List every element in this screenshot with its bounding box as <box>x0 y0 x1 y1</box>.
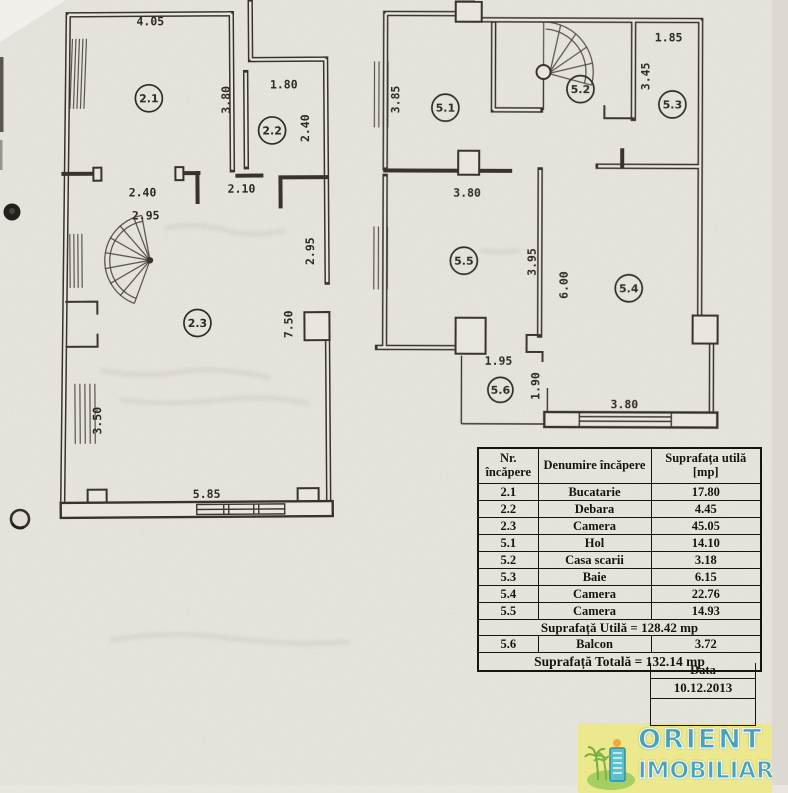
date-label: Data <box>650 663 756 679</box>
right-floor-plan: 5.1 5.2 5.3 5.4 5.5 5.6 3.85 1.85 3.45 3… <box>373 1 718 427</box>
room-label: 5.4 <box>619 282 639 295</box>
cell-nr: 2.2 <box>478 501 538 518</box>
cell-name: Casa scarii <box>538 552 651 569</box>
spiral-stair-right <box>536 22 593 110</box>
cell-nr: 5.5 <box>478 603 538 620</box>
room-badge-5-2: 5.2 <box>567 76 594 103</box>
room-badge-5-6: 5.6 <box>488 377 513 402</box>
cell-name: Baie <box>538 569 651 586</box>
room-badge-2-3: 2.3 <box>184 309 211 336</box>
table-row: 2.3 Camera 45.05 <box>478 518 761 535</box>
cell-nr: 5.2 <box>478 552 538 569</box>
signature-cell <box>650 699 756 726</box>
room-label: 2.2 <box>262 124 282 137</box>
dim-label: 3.80 <box>610 397 638 411</box>
dim-label: 2.10 <box>228 182 256 196</box>
cell-area: 17.80 <box>651 484 761 501</box>
dim-label: 1.90 <box>528 372 542 400</box>
cell-nr: 2.1 <box>478 484 538 501</box>
table-row: 5.5 Camera 14.93 <box>478 603 761 620</box>
dim-label: 3.50 <box>90 407 104 435</box>
dim-label: 7.50 <box>281 310 295 338</box>
dim-label: 1.85 <box>655 30 683 44</box>
cell-area: 4.45 <box>651 501 761 518</box>
erased-pencil-smudges <box>100 225 520 643</box>
dim-label: 6.00 <box>557 271 571 299</box>
dim-label: 1.80 <box>270 77 298 91</box>
cell-name: Camera <box>538 518 651 535</box>
dim-label: 2.95 <box>132 208 160 222</box>
cell-name: Balcon <box>538 636 651 653</box>
table-row: 5.2 Casa scarii 3.18 <box>478 552 761 569</box>
room-label: 2.1 <box>139 92 159 105</box>
dim-label: 3.80 <box>219 86 233 114</box>
logo-text-line1: ORIENT <box>638 724 763 755</box>
subtotal-row: Suprafață Utilă = 128.42 mp <box>478 620 761 636</box>
cell-nr: 2.3 <box>478 518 538 535</box>
balcony-row: 5.6 Balcon 3.72 <box>478 636 761 653</box>
room-badge-5-5: 5.5 <box>450 247 477 274</box>
cell-name: Camera <box>538 586 651 603</box>
table-row: 5.3 Baie 6.15 <box>478 569 761 586</box>
cell-name: Hol <box>538 535 651 552</box>
room-badge-5-1: 5.1 <box>432 94 459 121</box>
room-badge-5-4: 5.4 <box>615 275 642 302</box>
cell-area: 45.05 <box>651 518 761 535</box>
left-floor-plan: 2.1 2.2 2.3 4.05 3.80 1.80 2.40 2.40 2.1… <box>57 1 333 518</box>
cell-area: 14.93 <box>651 603 761 620</box>
room-label: 5.3 <box>663 98 683 111</box>
room-label: 5.1 <box>436 102 456 115</box>
header-nr: Nr. încăpere <box>478 448 538 484</box>
dim-label: 2.95 <box>303 237 317 265</box>
cell-area: 6.15 <box>651 569 761 586</box>
room-label: 5.2 <box>571 83 591 96</box>
dim-label: 5.85 <box>193 487 221 501</box>
table-header-row: Nr. încăpere Denumire încăpere Suprafața… <box>478 448 761 484</box>
hole-punch-bottom <box>11 510 29 528</box>
dim-label: 1.95 <box>485 354 513 368</box>
subtotal-text: Suprafață Utilă = 128.42 mp <box>478 620 761 636</box>
table-row: 2.2 Debara 4.45 <box>478 501 761 518</box>
dim-label: 3.85 <box>388 86 402 114</box>
hole-punch-top <box>4 204 21 221</box>
date-box: Data 10.12.2013 <box>650 663 756 726</box>
dim-label: 3.95 <box>525 248 539 276</box>
room-label: 5.5 <box>454 255 474 268</box>
table-row: 2.1 Bucatarie 17.80 <box>478 484 761 501</box>
cell-nr: 5.6 <box>478 636 538 653</box>
scanned-floorplan-page: { "left_plan": { "rooms": ["2.1", "2.2",… <box>0 0 788 785</box>
dim-label: 3.45 <box>638 62 652 90</box>
cell-area: 14.10 <box>651 535 761 552</box>
dim-label: 2.40 <box>129 185 157 199</box>
orient-imobiliar-logo: ORIENT IMOBILIAR <box>578 723 772 793</box>
cell-name: Bucatarie <box>538 484 651 501</box>
cell-area: 3.18 <box>651 552 761 569</box>
cell-name: Debara <box>538 501 651 518</box>
logo-graphic <box>584 728 638 790</box>
header-denumire: Denumire încăpere <box>538 448 651 484</box>
room-label: 5.6 <box>491 384 511 397</box>
cell-nr: 5.3 <box>478 569 538 586</box>
cell-nr: 5.4 <box>478 586 538 603</box>
cell-nr: 5.1 <box>478 535 538 552</box>
dim-label: 3.80 <box>453 186 481 200</box>
room-label: 2.3 <box>188 317 208 330</box>
room-badge-5-3: 5.3 <box>659 91 686 118</box>
header-suprafata: Suprafața utilă [mp] <box>651 448 761 484</box>
room-badge-2-2: 2.2 <box>259 117 286 144</box>
logo-text-line2: IMOBILIAR <box>638 758 772 784</box>
cell-name: Camera <box>538 603 651 620</box>
room-badge-2-1: 2.1 <box>135 85 162 112</box>
cell-area: 22.76 <box>651 586 761 603</box>
table-row: 5.4 Camera 22.76 <box>478 586 761 603</box>
dim-label: 4.05 <box>136 14 164 28</box>
spiral-stair-left <box>104 215 153 303</box>
logo-sun <box>613 739 621 747</box>
dim-label: 2.40 <box>298 114 312 142</box>
table-row: 5.1 Hol 14.10 <box>478 535 761 552</box>
area-table: Nr. încăpere Denumire încăpere Suprafața… <box>477 447 762 672</box>
date-value: 10.12.2013 <box>650 679 756 699</box>
cell-area: 3.72 <box>651 636 761 653</box>
